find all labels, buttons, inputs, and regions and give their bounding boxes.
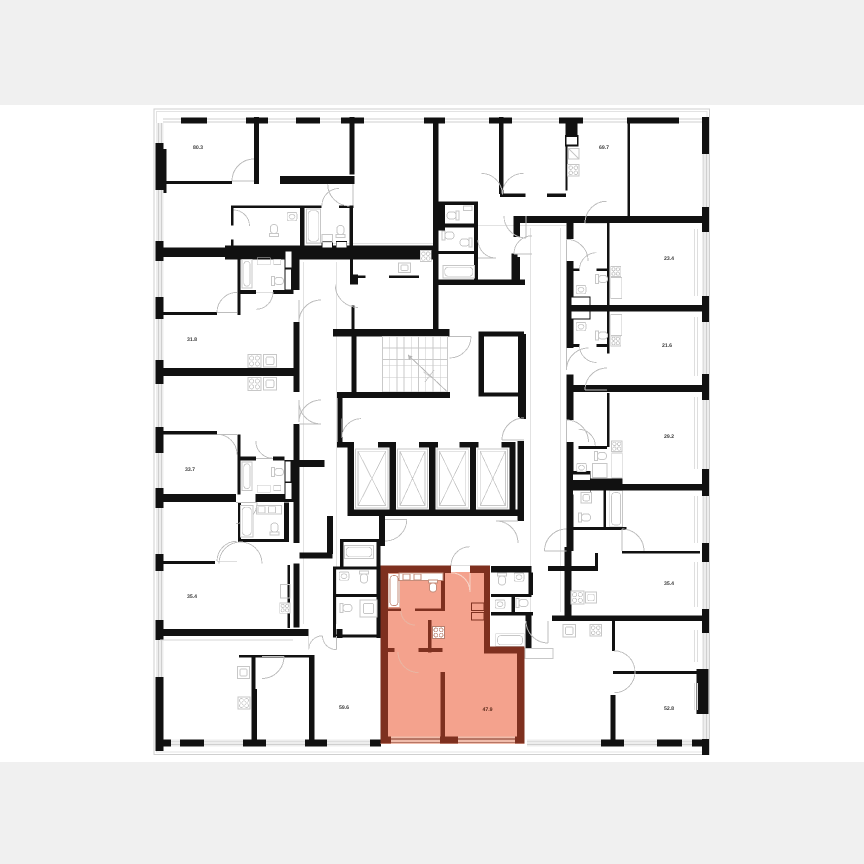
- svg-text:69.7: 69.7: [599, 145, 609, 151]
- svg-text:35.4: 35.4: [664, 581, 674, 587]
- svg-text:35.4: 35.4: [187, 594, 197, 600]
- svg-text:21.6: 21.6: [662, 343, 672, 349]
- svg-text:80.3: 80.3: [193, 145, 203, 151]
- svg-text:52.8: 52.8: [664, 706, 674, 712]
- svg-text:23.4: 23.4: [664, 256, 674, 262]
- svg-text:33.7: 33.7: [185, 467, 195, 473]
- svg-text:59.6: 59.6: [339, 705, 349, 711]
- svg-text:31.8: 31.8: [187, 337, 197, 343]
- svg-text:47.9: 47.9: [482, 707, 492, 713]
- svg-text:29.2: 29.2: [664, 434, 674, 440]
